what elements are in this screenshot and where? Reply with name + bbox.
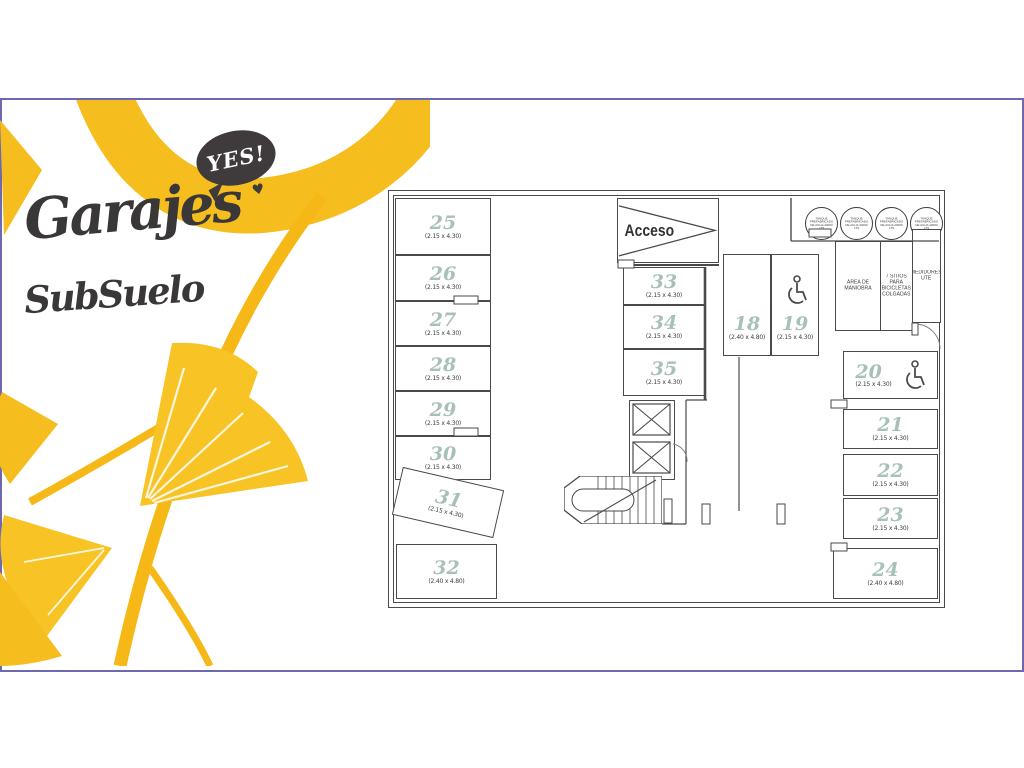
- stall-23: 23 (2.15 x 4.30): [843, 498, 938, 539]
- stall-32: 32 (2.40 x 4.80): [396, 544, 497, 599]
- access-ramp: Acceso: [617, 198, 719, 263]
- stall-number: 19: [782, 315, 808, 334]
- listing-image: YES! ♥ Garajes SubSuelo Acceso 25 (2.15 …: [0, 0, 1024, 768]
- stall-28: 28 (2.15 x 4.30): [395, 346, 491, 391]
- stall-dimensions: (2.15 x 4.30): [425, 285, 461, 291]
- stall-dimensions: (2.15 x 4.30): [646, 334, 682, 340]
- stall-number: 35: [651, 360, 677, 379]
- stall-dimensions: (2.15 x 4.30): [872, 526, 908, 532]
- stall-number: 21: [877, 416, 903, 435]
- elevator-shafts: [629, 400, 675, 480]
- water-tank-1: TANQUE PREFABRICADO DE AGUA 20000 lts: [805, 207, 838, 240]
- stairwell-drawing: [564, 476, 662, 524]
- room-label: 7 SITIOS PARA BICICLETAS COLGADAS: [882, 274, 911, 297]
- stall-27: 27 (2.15 x 4.30): [395, 301, 491, 346]
- room-maneuver-area: ÁREA DE MANIOBRA: [835, 241, 881, 331]
- stall-number: 33: [651, 273, 677, 292]
- stall-34: 34 (2.15 x 4.30): [623, 305, 705, 349]
- stall-24: 24 (2.40 x 4.80): [833, 548, 938, 599]
- room-utility-meters: MEDIDORES UTE: [912, 229, 941, 323]
- stall-dimensions: (2.15 x 4.30): [425, 234, 461, 240]
- stall-26: 26 (2.15 x 4.30): [395, 255, 491, 301]
- stall-dimensions: (2.15 x 4.30): [872, 482, 908, 488]
- stall-19: 19 (2.15 x 4.30): [771, 254, 819, 356]
- wheelchair-icon: [784, 275, 808, 305]
- stall-20: 20 (2.15 x 4.30): [843, 351, 938, 399]
- stall-dimensions: (2.15 x 4.30): [425, 465, 461, 471]
- stall-dimensions: (2.40 x 4.80): [729, 335, 765, 341]
- stall-dimensions: (2.15 x 4.30): [855, 382, 891, 388]
- stall-number: 20: [855, 363, 891, 382]
- room-bicycle-storage: 7 SITIOS PARA BICICLETAS COLGADAS: [880, 241, 913, 331]
- stall-number: 30: [430, 445, 456, 464]
- stall-number: 26: [430, 265, 456, 284]
- stall-number: 28: [430, 356, 456, 375]
- stall-number: 27: [430, 311, 456, 330]
- stall-25: 25 (2.15 x 4.30): [395, 198, 491, 255]
- stall-22: 22 (2.15 x 4.30): [843, 454, 938, 496]
- stall-18: 18 (2.40 x 4.80): [723, 254, 771, 356]
- tank-label: TANQUE PREFABRICADO DE AGUA 20000 lts: [880, 217, 904, 230]
- wheelchair-icon: [902, 360, 926, 390]
- tank-label: TANQUE PREFABRICADO DE AGUA 20000 lts: [845, 217, 869, 230]
- stall-dimensions: (2.15 x 4.30): [646, 293, 682, 299]
- stall-number: 25: [430, 214, 456, 233]
- room-label: MEDIDORES UTE: [912, 270, 941, 282]
- stall-number: 23: [877, 506, 903, 525]
- elevator-drawing: [630, 401, 673, 478]
- stall-dimensions: (2.40 x 4.80): [867, 581, 903, 587]
- stall-dimensions: (2.15 x 4.30): [872, 436, 908, 442]
- room-label: ÁREA DE MANIOBRA: [839, 280, 876, 292]
- stall-dimensions: (2.40 x 4.80): [428, 579, 464, 585]
- garage-floor-plan: Acceso 25 (2.15 x 4.30) 26 (2.15 x 4.30)…: [388, 190, 945, 608]
- water-tank-2: TANQUE PREFABRICADO DE AGUA 20000 lts: [840, 207, 873, 240]
- stall-number: 22: [877, 462, 903, 481]
- stall-33: 33 (2.15 x 4.30): [623, 267, 705, 305]
- tank-label: TANQUE PREFABRICADO DE AGUA 20000 lts: [810, 217, 834, 230]
- water-tank-3: TANQUE PREFABRICADO DE AGUA 20000 lts: [875, 207, 908, 240]
- stall-29: 29 (2.15 x 4.30): [395, 391, 491, 436]
- stall-number: 32: [433, 559, 459, 578]
- stall-dimensions: (2.15 x 4.30): [425, 421, 461, 427]
- stall-number: 24: [872, 561, 898, 580]
- stall-number: 34: [651, 314, 677, 333]
- stall-dimensions: (2.15 x 4.30): [425, 376, 461, 382]
- stall-number: 18: [734, 315, 760, 334]
- stall-dimensions: (2.15 x 4.30): [646, 380, 682, 386]
- stall-dimensions: (2.15 x 4.30): [777, 335, 813, 341]
- stall-35: 35 (2.15 x 4.30): [623, 349, 705, 396]
- stall-dimensions: (2.15 x 4.30): [425, 331, 461, 337]
- stall-21: 21 (2.15 x 4.30): [843, 409, 938, 449]
- access-label: Acceso: [618, 221, 674, 241]
- stall-number: 29: [430, 401, 456, 420]
